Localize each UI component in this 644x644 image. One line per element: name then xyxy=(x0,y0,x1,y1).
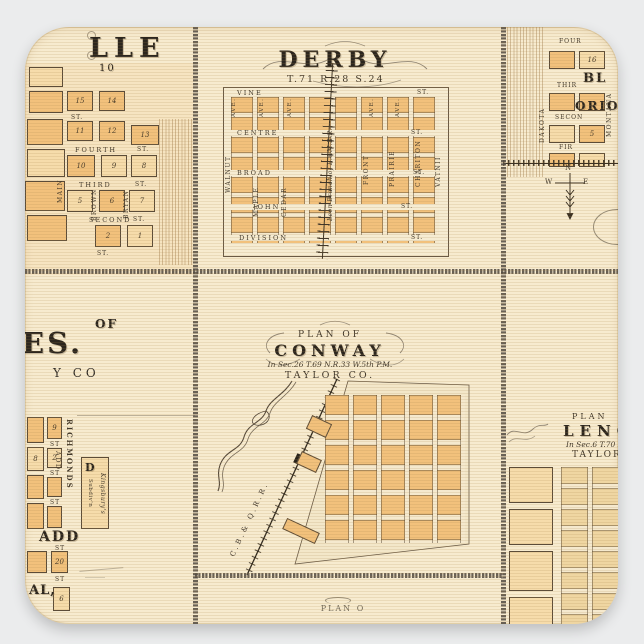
avenue-label-walnut: WALNUT xyxy=(225,145,232,193)
panel-divider-vertical-left xyxy=(193,27,198,624)
block-number: 9 xyxy=(52,424,56,432)
panel-divider-horizontal-bottom xyxy=(195,573,503,578)
town-block xyxy=(509,551,553,591)
block-number: 11 xyxy=(76,127,85,135)
block-number: 1 xyxy=(138,232,142,240)
town-block: 11 xyxy=(67,121,93,141)
block-number: 2 xyxy=(106,232,110,240)
town-block: 2 xyxy=(95,225,121,247)
pencil-annotation xyxy=(85,572,105,578)
avenue-abbr-label: AVE. xyxy=(259,99,265,117)
town-block xyxy=(27,417,44,443)
flourish-arc xyxy=(325,597,351,604)
topleft-town-number-fragment: 10 xyxy=(99,63,116,74)
street-label: ST. xyxy=(97,251,109,257)
compass-needle-icon xyxy=(563,173,577,221)
avenue-label-maple: MAPLE xyxy=(253,177,260,217)
street-label: ST. xyxy=(417,90,429,96)
block-number: 14 xyxy=(108,97,117,105)
street-label: ST. xyxy=(71,115,83,121)
town-block: 20 xyxy=(51,551,68,573)
compass-north-label: N xyxy=(565,165,573,172)
town-block xyxy=(27,503,44,529)
avenue-abbr-label: AVE. xyxy=(369,99,375,117)
avenue-abbr-label: AVE. xyxy=(231,99,237,117)
street-label: ST. xyxy=(135,182,147,188)
street-label: ST. xyxy=(411,235,423,241)
subdivision-label: Subdiv'n xyxy=(87,479,93,525)
avenue-label-front: FRONT xyxy=(363,145,370,185)
avenue-abbr-label: AVE. xyxy=(395,99,401,117)
lenox-flourish xyxy=(505,419,549,445)
town-block xyxy=(549,125,575,143)
block-number: 6 xyxy=(59,595,63,603)
town-block xyxy=(509,597,553,624)
derby-title: DERBY xyxy=(270,47,400,73)
survey-line xyxy=(77,415,195,416)
topright-name-fragment-2: ORIO xyxy=(575,99,618,113)
street-label: ST xyxy=(50,471,60,477)
street-label: ST. xyxy=(133,217,145,223)
town-block: 8 xyxy=(131,155,157,177)
avenue-label-cedar: CEDAR xyxy=(281,177,288,217)
midleft-plan-of-fragment: OF xyxy=(95,317,118,331)
town-block xyxy=(509,509,553,545)
town-block: 9 xyxy=(101,155,127,177)
town-block xyxy=(27,215,67,241)
street-label-first-fragment: FIR xyxy=(559,145,573,151)
block-number: 10 xyxy=(77,162,86,170)
derby-railroad-label: Leon Branch of B.&M.R.R. xyxy=(327,131,334,221)
midleft-al-fragment: AL, xyxy=(29,583,56,598)
block-number: 20 xyxy=(55,558,64,566)
street-label-third-fragment: THIR xyxy=(557,83,577,89)
richmonds-addition-label: RICHMONDS xyxy=(65,419,74,521)
street-label-brown: BROWN xyxy=(91,185,98,221)
town-block: 12 xyxy=(99,121,125,141)
block-number: 16 xyxy=(588,56,597,64)
avenue-label-prairie: PRAIRIE xyxy=(389,139,396,187)
lenox-location-fragment: In Sec.6 T.70 N. xyxy=(566,441,618,449)
street-label-bryan: BRYAN xyxy=(123,179,130,219)
town-block xyxy=(549,51,575,69)
block-number: 5 xyxy=(590,130,594,138)
town-block xyxy=(549,93,575,111)
street-label: ST xyxy=(50,500,60,506)
panel-divider-horizontal-top xyxy=(25,269,618,274)
lenox-county-fragment: TAYLOR CO. xyxy=(572,451,618,460)
town-block: 13 xyxy=(131,125,159,145)
block-number: 6 xyxy=(110,197,114,205)
town-block: 16 xyxy=(579,51,605,69)
conway-title: CONWAY xyxy=(260,341,400,360)
town-block: 6 xyxy=(99,190,125,212)
block-number: 7 xyxy=(140,197,144,205)
compass-east-label: E xyxy=(583,179,590,186)
town-block: 8 xyxy=(27,447,44,471)
town-block xyxy=(27,119,63,145)
town-block: 5 xyxy=(579,125,605,143)
town-block xyxy=(509,467,553,503)
conway-county: TAYLOR CO. xyxy=(280,371,380,381)
town-block xyxy=(27,551,47,573)
town-block: 1 xyxy=(127,225,153,247)
street-label-vine: VINE xyxy=(237,90,263,97)
street-label: ST xyxy=(55,577,65,583)
street-label: ST xyxy=(55,546,65,552)
town-block: 7 xyxy=(129,190,155,212)
square-sticker-atlas-sheet: LLE 10 15 14 ST. 11 12 13 FOURTH ST. 10 … xyxy=(25,27,618,624)
town-block xyxy=(29,91,63,113)
product-photo-background: LLE 10 15 14 ST. 11 12 13 FOURTH ST. 10 … xyxy=(0,0,644,644)
street-label: ST xyxy=(50,442,60,448)
street-label-dakota: DAKOTA xyxy=(539,79,546,143)
town-block: 5 xyxy=(67,190,93,212)
addition-label: ADD xyxy=(39,529,80,545)
partial-cartouche-oval xyxy=(593,209,618,245)
kingsburys-label: Kingsbury's xyxy=(99,473,106,525)
topright-railroad-line xyxy=(503,160,618,166)
midleft-town-name-fragment: ES. xyxy=(25,326,83,360)
town-block xyxy=(27,475,44,499)
topleft-town-name-fragment: LLE xyxy=(89,33,166,64)
derby-township-range: T.71 R.28 S.24 xyxy=(287,75,385,85)
block-number: 9 xyxy=(112,162,116,170)
richmonds-add-label: ADD xyxy=(54,451,62,485)
town-block: 15 xyxy=(67,91,93,111)
street-label-fourth: FOURTH xyxy=(75,147,117,154)
lenox-town-blocks xyxy=(561,467,618,624)
town-block xyxy=(29,67,63,87)
compass-west-label: W xyxy=(545,179,554,186)
engraving-hatching xyxy=(159,119,193,265)
town-block: 10 xyxy=(67,155,95,177)
block-number: 15 xyxy=(76,97,85,105)
lenox-plan-of-fragment: PLAN xyxy=(572,413,607,421)
panel-divider-vertical-right xyxy=(501,27,506,624)
street-label-fourth-fragment: FOUR xyxy=(559,39,582,45)
town-block: 9 xyxy=(47,417,62,439)
avenue-label-east: VATNII xyxy=(435,139,442,187)
topright-name-fragment-1: BL xyxy=(583,71,607,86)
lenox-title: LENOX xyxy=(563,422,618,440)
street-label-main: MAIN xyxy=(57,155,64,203)
railroad-rail xyxy=(503,163,618,164)
pencil-annotation xyxy=(79,559,124,572)
street-label-broad: BROAD xyxy=(237,170,272,177)
street-label: ST. xyxy=(401,204,413,210)
block-number: 13 xyxy=(141,131,150,139)
conway-town-blocks xyxy=(325,395,465,543)
town-block xyxy=(47,506,62,528)
street-label-centre: CENTRE xyxy=(237,130,278,137)
bottom-plan-of-fragment: PLAN O xyxy=(313,605,373,613)
street-label: ST. xyxy=(137,147,149,153)
block-number: 5 xyxy=(78,197,82,205)
avenue-label-chariton: CHARITON xyxy=(415,135,422,187)
street-label-second-fragment: SECON xyxy=(555,115,583,121)
street-label-division: DIVISION xyxy=(239,235,288,242)
town-block: 14 xyxy=(99,91,125,111)
block-d-label: D xyxy=(85,461,95,474)
conway-plan-of: PLAN OF xyxy=(280,331,380,340)
midleft-county-fragment: Y CO xyxy=(53,367,100,379)
avenue-abbr-label: AVE. xyxy=(287,99,293,117)
block-number: 12 xyxy=(108,127,117,135)
conway-railroad-label: C.B.& Q.R.R. xyxy=(229,480,271,557)
block-number: 8 xyxy=(33,455,37,463)
conway-location: In Sec.26 T.69 N.R.33 W.5th P.M. xyxy=(250,361,410,369)
block-number: 8 xyxy=(142,162,146,170)
